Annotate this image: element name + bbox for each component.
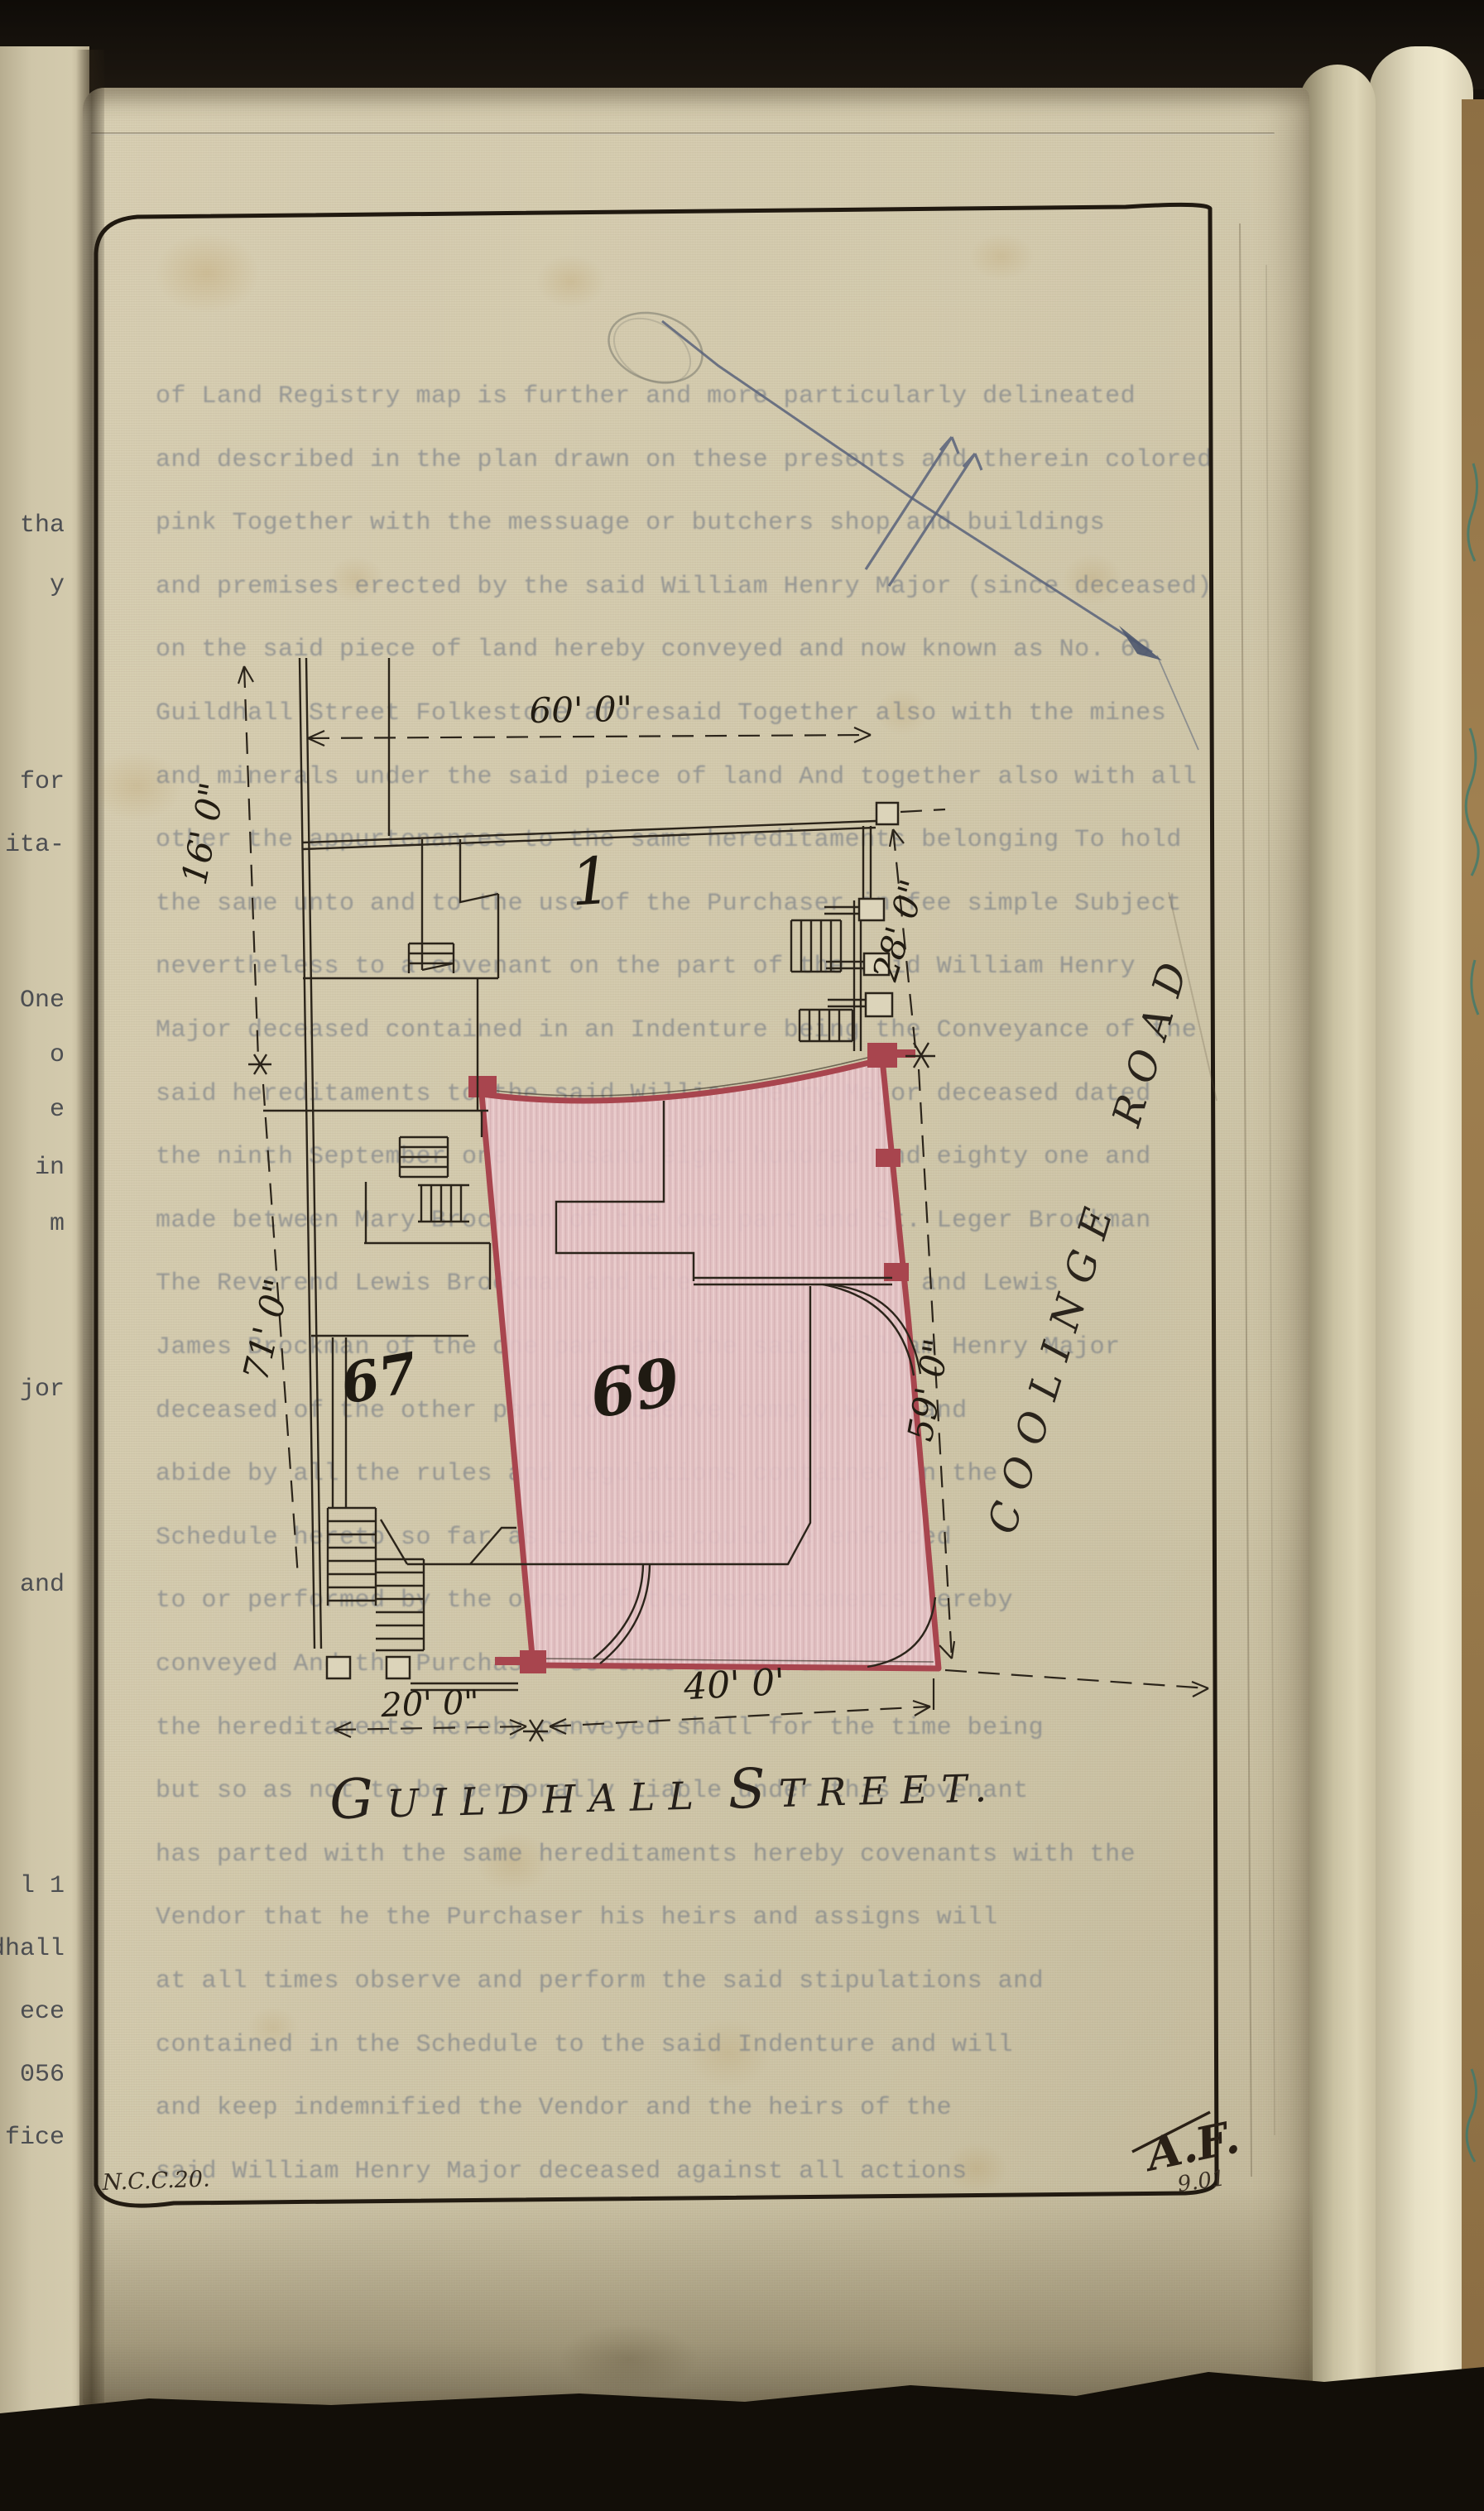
marbled-board-edge xyxy=(1462,99,1484,2499)
page-top-crease xyxy=(91,132,1275,135)
left-margin-fragments: thayforita-Oneoeinmjorandl 1dhallece056f… xyxy=(0,0,76,2511)
deed-page-paper xyxy=(83,88,1309,2405)
underlying-page-edge-inner xyxy=(1299,65,1376,2448)
scan-background-top xyxy=(0,0,1484,89)
margin-fragment: for xyxy=(20,768,65,796)
margin-fragment: jor xyxy=(20,1376,65,1404)
margin-fragment: l 1 xyxy=(20,1872,65,1900)
margin-fragment: and xyxy=(20,1571,65,1599)
margin-fragment: ita- xyxy=(5,831,65,859)
margin-fragment: o xyxy=(50,1041,65,1069)
margin-fragment: One xyxy=(20,987,65,1015)
scanned-deed-page: of Land Registry map is further and more… xyxy=(0,0,1484,2511)
margin-fragment: 056 xyxy=(20,2061,65,2089)
underlying-page-edge-outer xyxy=(1369,46,1473,2488)
margin-fragment: m xyxy=(50,1210,65,1238)
margin-fragment: tha xyxy=(20,511,65,540)
margin-fragment: e xyxy=(50,1096,65,1124)
page-bottom-curl-shadow xyxy=(79,2185,1313,2408)
margin-fragment: dhall xyxy=(0,1935,65,1963)
margin-fragment: ece xyxy=(20,1998,65,2026)
margin-fragment: y xyxy=(50,571,65,599)
margin-fragment: in xyxy=(35,1154,65,1182)
book-gutter-shadow xyxy=(76,50,104,2408)
margin-fragment: fice xyxy=(5,2124,65,2152)
